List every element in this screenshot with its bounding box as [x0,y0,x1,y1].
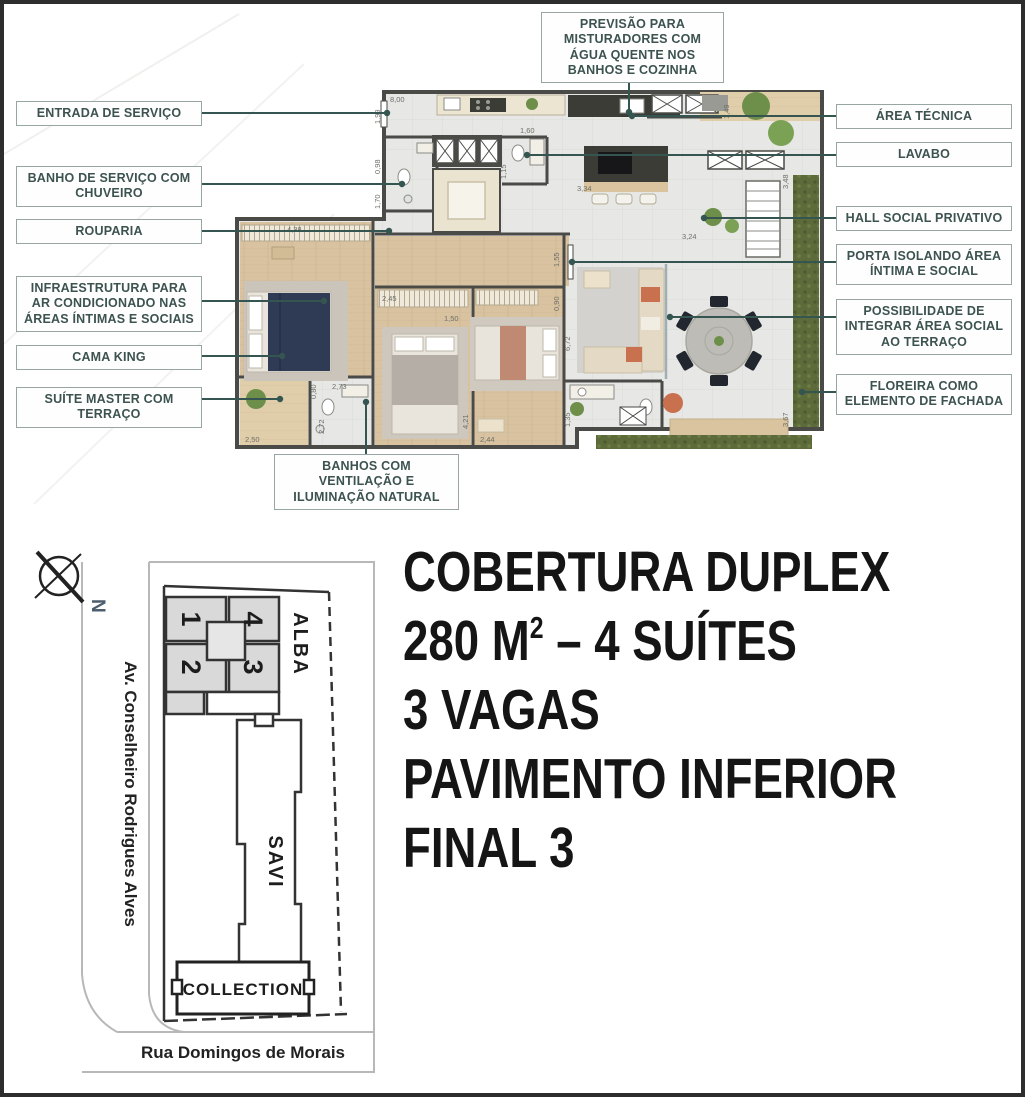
callout-infraestrutura-ar: INFRAESTRUTURA PARA AR CONDICIONADO NAS … [16,276,202,332]
elevator-core [432,135,502,167]
svg-text:0,98: 0,98 [373,159,382,174]
svg-text:4,21: 4,21 [461,414,470,429]
callout-area-tecnica-label: ÁREA TÉCNICA [876,109,972,124]
svg-text:0,80: 0,80 [309,384,318,399]
callout-integrar-terraco-label: POSSIBILIDADE DE INTEGRAR ÁREA SOCIAL AO… [843,304,1005,350]
terrace-bench [670,419,788,437]
compass-icon: N [35,552,108,613]
collection-label: COLLECTION [183,980,304,999]
callout-banhos-ventilacao: BANHOS COM VENTILAÇÃO E ILUMINAÇÃO NATUR… [274,454,459,510]
living-room [577,267,664,373]
collection-building: COLLECTION [172,962,314,1014]
service-stair [433,169,500,232]
svg-text:1,15: 1,15 [499,164,508,179]
master-terrace-plant [246,389,266,409]
top-terrace-bush [742,92,770,120]
svg-text:2,72: 2,72 [317,419,326,434]
svg-text:1,60: 1,60 [520,126,535,135]
desc-line-area: 280 M2 – 4 SUÍTES [403,607,897,676]
coral-pouf [663,393,683,413]
callout-entrada-servico-label: ENTRADA DE SERVIÇO [37,106,182,121]
savi-label: SAVI [264,835,286,888]
hall-plant-icon [704,208,722,226]
svg-text:8,00: 8,00 [390,95,405,104]
street-left-label: Av. Conselheiro Rodrigues Alves [121,661,140,927]
callout-lavabo-label: LAVABO [898,147,950,162]
svg-text:1,70: 1,70 [373,194,382,209]
unit-description: COBERTURA DUPLEX 280 M2 – 4 SUÍTES 3 VAG… [403,538,1021,883]
flyer-canvas: 8,00 1,99 0,98 1,70 4,38 1,49 1,60 1,15 … [0,0,1025,1097]
callout-cama-king-label: CAMA KING [72,350,146,365]
svg-text:1,99: 1,99 [373,109,382,124]
callout-integrar-terraco: POSSIBILIDADE DE INTEGRAR ÁREA SOCIAL AO… [836,299,1012,355]
hall-closets [708,151,784,169]
callout-suite-master-label: SUÍTE MASTER COM TERRAÇO [23,392,195,423]
callout-floreira: FLOREIRA COMO ELEMENTO DE FACHADA [836,374,1012,415]
svg-text:2,50: 2,50 [245,435,260,444]
callout-porta-isolando-label: PORTA ISOLANDO ÁREA ÍNTIMA E SOCIAL [843,249,1005,280]
callout-floreira-label: FLOREIRA COMO ELEMENTO DE FACHADA [843,379,1005,410]
hall-corridor-floor [375,236,569,286]
svg-text:6,72: 6,72 [563,336,572,351]
svg-text:2,45: 2,45 [382,294,397,303]
savi-building: SAVI [237,714,301,999]
desc-line-title: COBERTURA DUPLEX [403,538,897,607]
callout-hall-social-label: HALL SOCIAL PRIVATIVO [846,211,1003,226]
site-map: N 1 2 4 3 ALBA SAVI [29,544,394,1096]
callout-hall-social: HALL SOCIAL PRIVATIVO [836,206,1012,231]
alba-unit-3: 3 [238,659,268,674]
callout-suite-master: SUÍTE MASTER COM TERRAÇO [16,387,202,428]
svg-text:1,50: 1,50 [444,314,459,323]
callout-porta-isolando: PORTA ISOLANDO ÁREA ÍNTIMA E SOCIAL [836,244,1012,285]
svg-text:3,67: 3,67 [781,412,790,427]
callout-previsao-misturadores: PREVISÃO PARA MISTURADORES COM ÁGUA QUEN… [541,12,724,83]
desc-line-pavimento: PAVIMENTO INFERIOR [403,745,897,814]
svg-text:1,49: 1,49 [722,104,731,119]
alba-label: ALBA [289,612,311,676]
floor-plan: 8,00 1,99 0,98 1,70 4,38 1,49 1,60 1,15 … [232,89,824,451]
callout-rouparia: ROUPARIA [16,219,202,244]
floreira-right-hedge [793,175,819,427]
callout-previsao-misturadores-label: PREVISÃO PARA MISTURADORES COM ÁGUA QUEN… [548,17,717,78]
svg-text:1,55: 1,55 [552,252,561,267]
kitchen-island [584,146,668,204]
street-bottom-label: Rua Domingos de Morais [141,1043,345,1062]
callout-cama-king: CAMA KING [16,345,202,370]
kitchen-counters [437,95,680,117]
callout-area-tecnica: ÁREA TÉCNICA [836,104,1012,129]
alba-building: 1 2 4 3 ALBA [166,597,311,714]
desc-line-vagas: 3 VAGAS [403,676,897,745]
svg-text:2,44: 2,44 [480,435,495,444]
alba-unit-2: 2 [176,659,206,674]
duplex-stair [746,181,780,257]
compass-north-label: N [87,599,108,613]
desc-line-final: FINAL 3 [403,814,897,883]
callout-rouparia-label: ROUPARIA [75,224,142,239]
svg-text:3,24: 3,24 [682,232,697,241]
top-terrace-bush-2 [768,120,794,146]
alba-unit-4: 4 [238,611,268,626]
svg-text:3,48: 3,48 [781,174,790,189]
svg-text:4,38: 4,38 [287,225,302,234]
callout-banhos-ventilacao-label: BANHOS COM VENTILAÇÃO E ILUMINAÇÃO NATUR… [281,459,452,505]
callout-banho-servico: BANHO DE SERVIÇO COM CHUVEIRO [16,166,202,207]
svg-text:2,73: 2,73 [332,382,347,391]
callout-entrada-servico: ENTRADA DE SERVIÇO [16,101,202,126]
svg-text:1,35: 1,35 [563,412,572,427]
callout-infraestrutura-ar-label: INFRAESTRUTURA PARA AR CONDICIONADO NAS … [23,281,195,327]
callout-banho-servico-label: BANHO DE SERVIÇO COM CHUVEIRO [23,171,195,202]
svg-text:0,90: 0,90 [552,296,561,311]
svg-text:3,34: 3,34 [577,184,592,193]
callout-lavabo: LAVABO [836,142,1012,167]
floreira-bottom-hedge [596,435,812,449]
square-meter-superscript: 2 [530,610,544,645]
hall-plant-icon-2 [725,219,739,233]
alba-unit-1: 1 [176,611,206,626]
isolating-door [568,245,573,279]
